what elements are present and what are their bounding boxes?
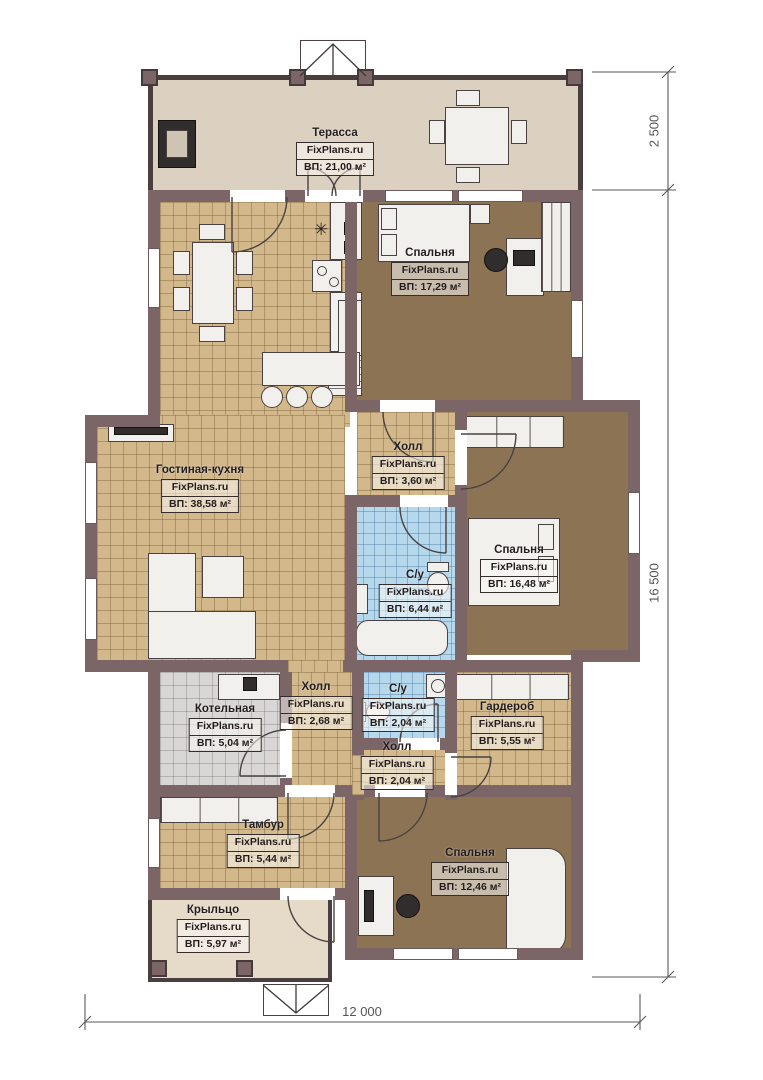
- room-watermark: FixPlans.ru: [228, 835, 299, 851]
- room-area: ВП: 38,58 м²: [162, 497, 238, 512]
- room-info-box: FixPlans.ru ВП: 38,58 м²: [161, 479, 239, 512]
- room-info-box: FixPlans.ru ВП: 12,46 м²: [431, 862, 509, 895]
- room-name: С/у: [362, 682, 435, 696]
- room-info-box: FixPlans.ru ВП: 2,04 м²: [362, 698, 435, 731]
- stairs-lines: [263, 44, 366, 1013]
- room-info-box: FixPlans.ru ВП: 2,04 м²: [361, 756, 434, 789]
- room-area: ВП: 21,00 м²: [297, 160, 373, 175]
- room-watermark: FixPlans.ru: [373, 457, 444, 473]
- room-name: Терасса: [296, 126, 374, 140]
- room-area: ВП: 5,55 м²: [472, 734, 543, 749]
- room-watermark: FixPlans.ru: [472, 717, 543, 733]
- dimension-label-12000: 12 000: [342, 1004, 382, 1019]
- room-name: Спальня: [480, 543, 558, 557]
- room-watermark: FixPlans.ru: [362, 757, 433, 773]
- room-info-box: FixPlans.ru ВП: 5,04 м²: [189, 718, 262, 751]
- room-label-vestibule: Тамбур FixPlans.ru ВП: 5,44 м²: [227, 818, 300, 868]
- room-watermark: FixPlans.ru: [392, 263, 468, 279]
- door-arc: [288, 896, 334, 942]
- room-watermark: FixPlans.ru: [178, 920, 249, 936]
- room-area: ВП: 12,46 м²: [432, 880, 508, 895]
- room-name: Котельная: [189, 702, 262, 716]
- stairs-bottom-marks: [263, 985, 329, 1013]
- door-arc: [379, 793, 427, 841]
- room-name: Холл: [372, 440, 445, 454]
- door-arc: [232, 197, 287, 252]
- room-info-box: FixPlans.ru ВП: 16,48 м²: [480, 559, 558, 592]
- stairs-top-marks: [300, 44, 366, 76]
- room-watermark: FixPlans.ru: [363, 699, 434, 715]
- room-label-boiler: Котельная FixPlans.ru ВП: 5,04 м²: [189, 702, 262, 752]
- door-arc: [461, 434, 516, 489]
- room-label-hall-2: Холл FixPlans.ru ВП: 2,68 м²: [280, 680, 353, 730]
- room-area: ВП: 6,44 м²: [380, 602, 451, 617]
- room-area: ВП: 16,48 м²: [481, 577, 557, 592]
- room-name: Гардероб: [471, 700, 544, 714]
- room-name: С/у: [379, 568, 452, 582]
- room-watermark: FixPlans.ru: [481, 560, 557, 576]
- room-info-box: FixPlans.ru ВП: 3,60 м²: [372, 456, 445, 489]
- room-label-porch: Крыльцо FixPlans.ru ВП: 5,97 м²: [177, 903, 250, 953]
- room-watermark: FixPlans.ru: [190, 719, 261, 735]
- room-area: ВП: 17,29 м²: [392, 280, 468, 295]
- room-area: ВП: 2,04 м²: [362, 774, 433, 789]
- room-name: Спальня: [431, 846, 509, 860]
- room-label-bedroom-3: Спальня FixPlans.ru ВП: 12,46 м²: [431, 846, 509, 896]
- room-label-bathroom-1: С/у FixPlans.ru ВП: 6,44 м²: [379, 568, 452, 618]
- room-info-box: FixPlans.ru ВП: 5,97 м²: [177, 919, 250, 952]
- room-name: Гостиная-кухня: [156, 463, 244, 477]
- room-info-box: FixPlans.ru ВП: 21,00 м²: [296, 142, 374, 175]
- room-area: ВП: 5,44 м²: [228, 852, 299, 867]
- room-area: ВП: 5,97 м²: [178, 937, 249, 952]
- room-watermark: FixPlans.ru: [380, 585, 451, 601]
- room-name: Тамбур: [227, 818, 300, 832]
- room-label-terrace: Терасса FixPlans.ru ВП: 21,00 м²: [296, 126, 374, 176]
- room-label-bedroom-1: Спальня FixPlans.ru ВП: 17,29 м²: [391, 246, 469, 296]
- dimension-lines: [79, 66, 676, 1030]
- room-name: Холл: [361, 740, 434, 754]
- dimension-extensions-right: [592, 72, 676, 977]
- room-area: ВП: 5,04 м²: [190, 736, 261, 751]
- room-info-box: FixPlans.ru ВП: 6,44 м²: [379, 584, 452, 617]
- room-area: ВП: 2,68 м²: [281, 714, 352, 729]
- room-label-hall-1: Холл FixPlans.ru ВП: 3,60 м²: [372, 440, 445, 490]
- room-info-box: FixPlans.ru ВП: 17,29 м²: [391, 262, 469, 295]
- room-info-box: FixPlans.ru ВП: 2,68 м²: [280, 696, 353, 729]
- room-name: Спальня: [391, 246, 469, 260]
- room-area: ВП: 3,60 м²: [373, 474, 444, 489]
- door-arc: [400, 507, 446, 553]
- room-label-hall-3: Холл FixPlans.ru ВП: 2,04 м²: [361, 740, 434, 790]
- floor-plan: ✳: [0, 0, 763, 1080]
- room-watermark: FixPlans.ru: [432, 863, 508, 879]
- door-arc: [451, 757, 491, 797]
- room-label-bathroom-2: С/у FixPlans.ru ВП: 2,04 м²: [362, 682, 435, 732]
- room-label-bedroom-2: Спальня FixPlans.ru ВП: 16,48 м²: [480, 543, 558, 593]
- room-watermark: FixPlans.ru: [162, 480, 238, 496]
- room-name: Холл: [280, 680, 353, 694]
- dimension-label-2500: 2 500: [647, 115, 662, 148]
- dimension-label-16500: 16 500: [647, 563, 662, 603]
- room-watermark: FixPlans.ru: [297, 143, 373, 159]
- room-label-living-kitchen: Гостиная-кухня FixPlans.ru ВП: 38,58 м²: [156, 463, 244, 513]
- room-watermark: FixPlans.ru: [281, 697, 352, 713]
- room-label-wardrobe: Гардероб FixPlans.ru ВП: 5,55 м²: [471, 700, 544, 750]
- plan-annotations: [0, 0, 763, 1080]
- room-name: Крыльцо: [177, 903, 250, 917]
- room-area: ВП: 2,04 м²: [363, 716, 434, 731]
- room-info-box: FixPlans.ru ВП: 5,44 м²: [227, 834, 300, 867]
- room-info-box: FixPlans.ru ВП: 5,55 м²: [471, 716, 544, 749]
